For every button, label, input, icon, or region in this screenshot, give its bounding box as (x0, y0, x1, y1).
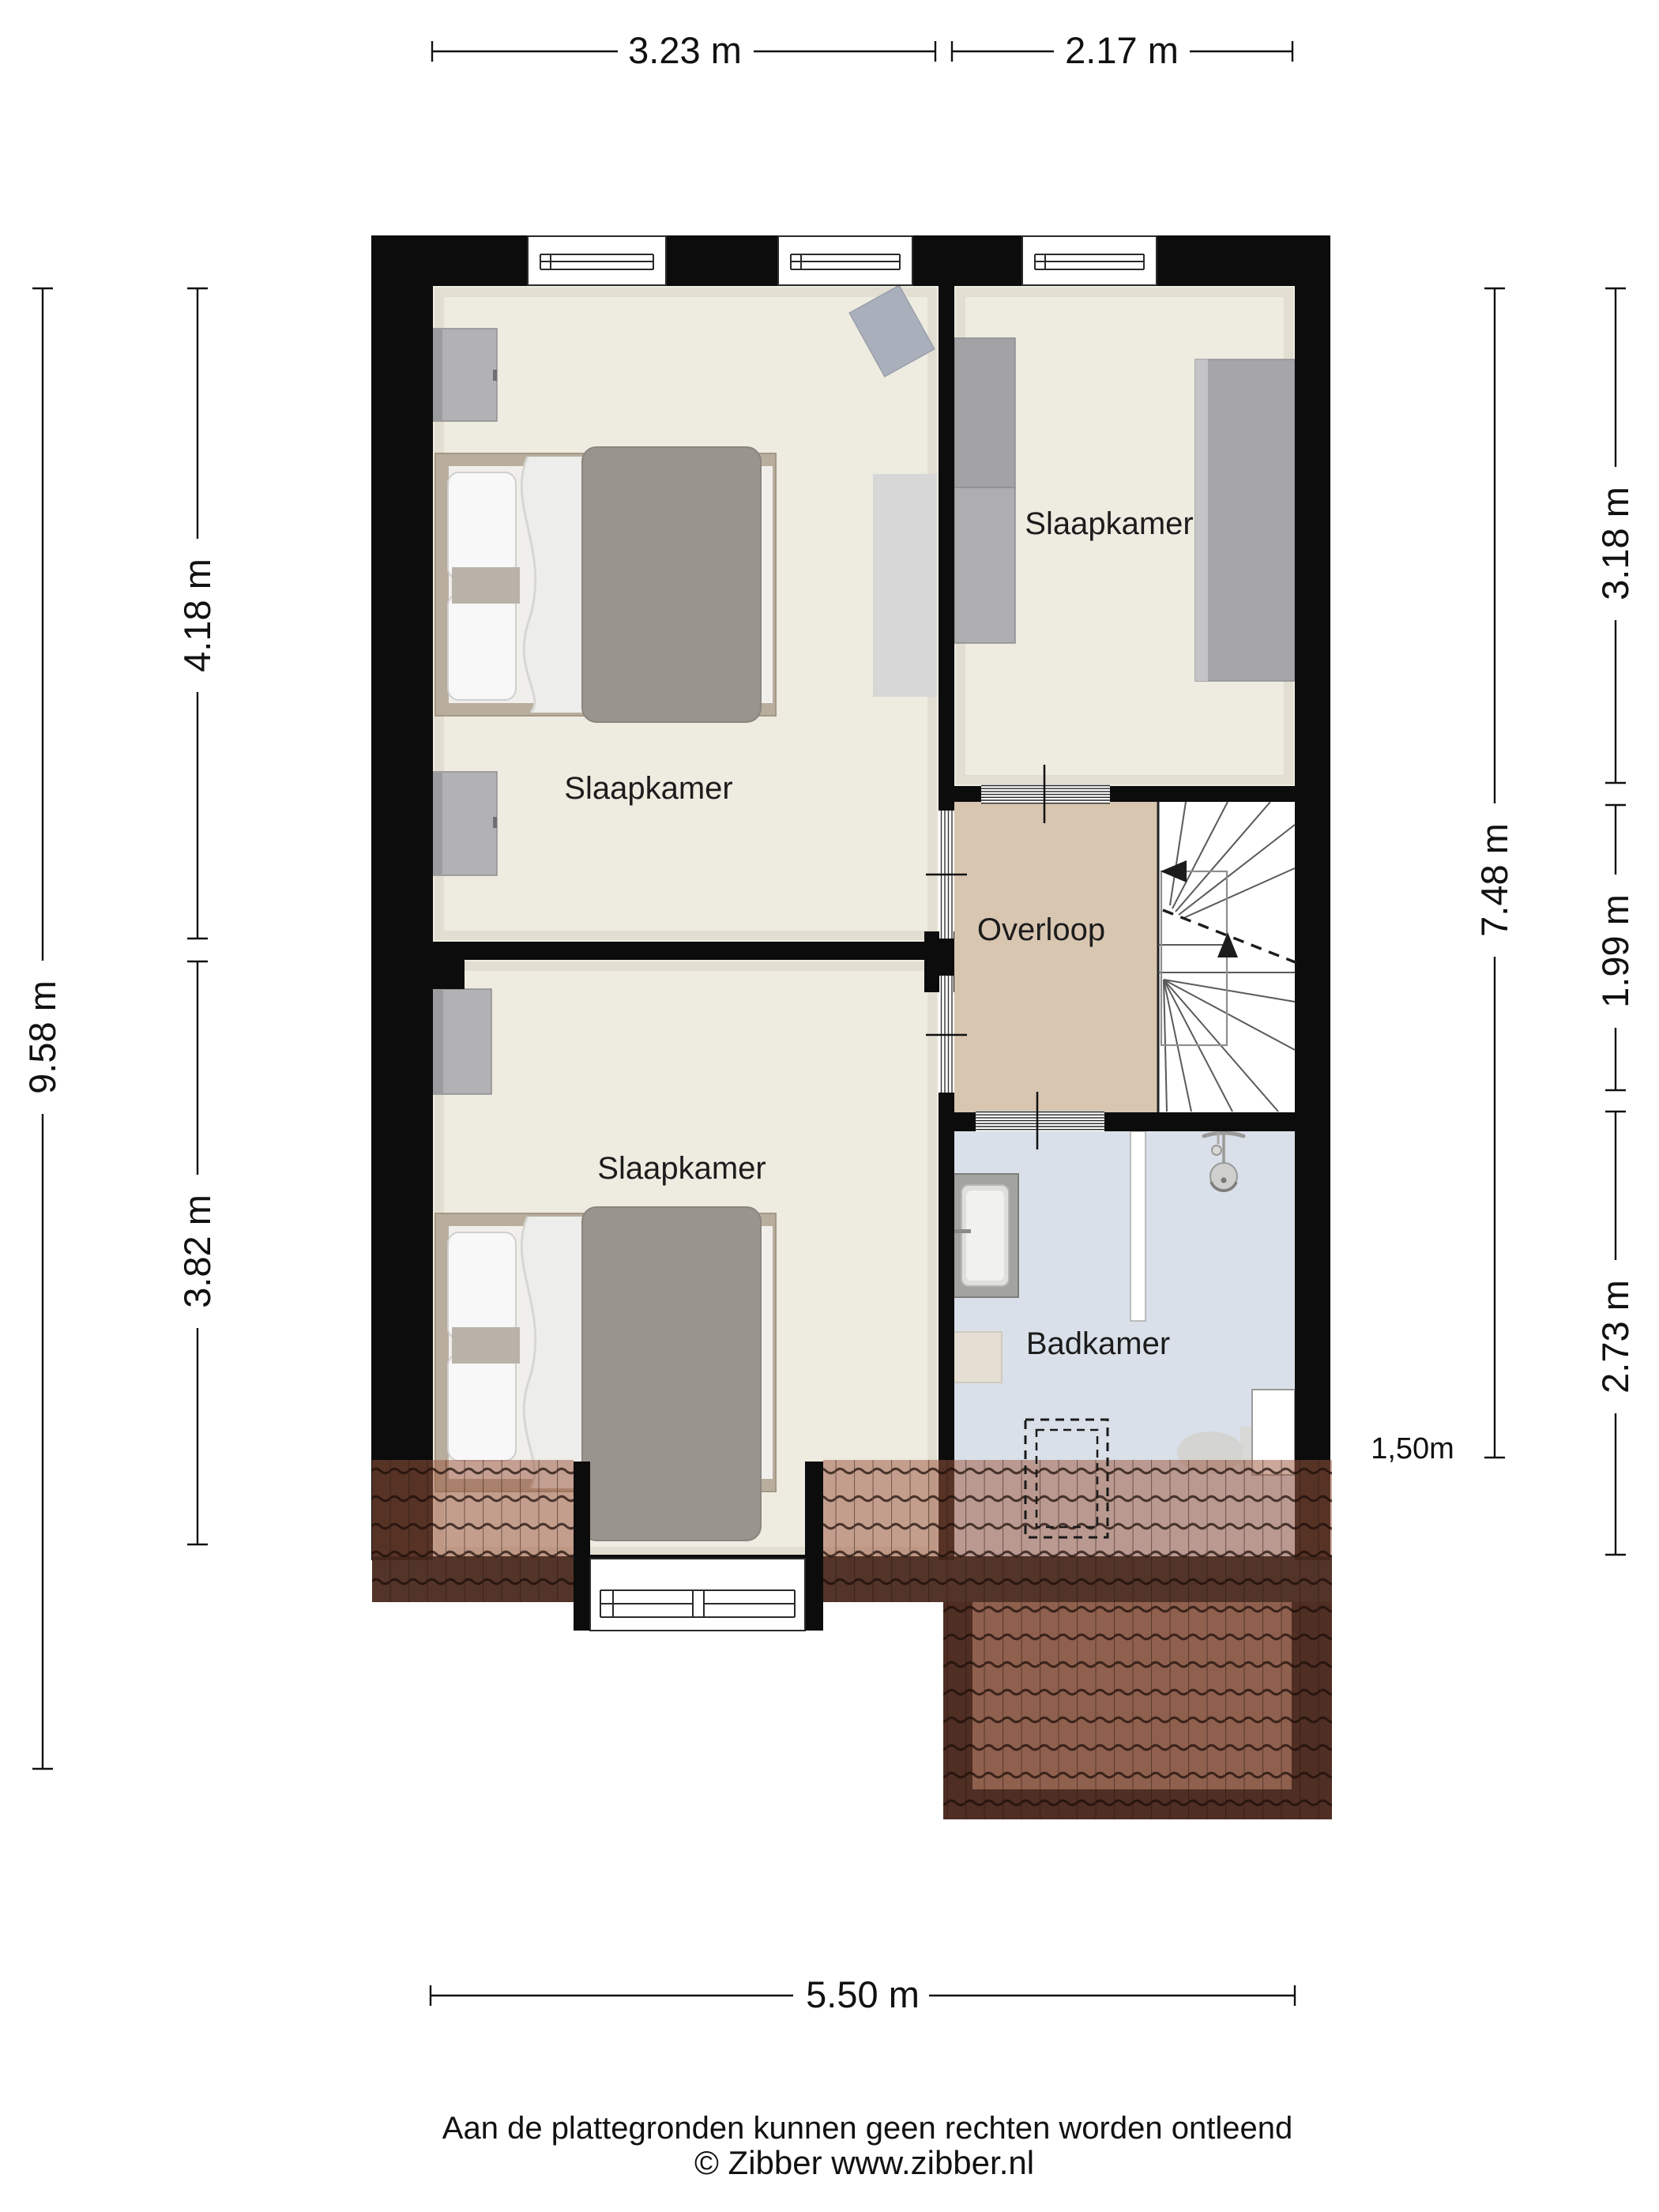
svg-text:Overloop: Overloop (977, 912, 1105, 947)
svg-text:© Zibber www.zibber.nl: © Zibber www.zibber.nl (694, 2144, 1034, 2181)
svg-text:3.23 m: 3.23 m (628, 29, 742, 71)
svg-text:Slaapkamer: Slaapkamer (1025, 506, 1193, 541)
svg-text:1,50m: 1,50m (1371, 1432, 1454, 1465)
svg-text:Aan de plattegronden kunnen ge: Aan de plattegronden kunnen geen rechten… (442, 2111, 1292, 2146)
svg-text:3.18 m: 3.18 m (1594, 487, 1636, 600)
svg-text:Slaapkamer: Slaapkamer (597, 1151, 766, 1186)
svg-text:Badkamer: Badkamer (1026, 1326, 1170, 1361)
svg-text:2.73 m: 2.73 m (1594, 1280, 1636, 1394)
svg-text:5.50 m: 5.50 m (806, 1973, 920, 2015)
svg-text:Slaapkamer: Slaapkamer (564, 771, 732, 806)
svg-text:1.99 m: 1.99 m (1594, 894, 1636, 1008)
svg-text:2.17 m: 2.17 m (1065, 29, 1179, 71)
svg-text:7.48 m: 7.48 m (1473, 823, 1515, 937)
svg-text:9.58 m: 9.58 m (21, 980, 63, 1094)
svg-text:3.82 m: 3.82 m (176, 1194, 218, 1308)
svg-text:4.18 m: 4.18 m (176, 559, 218, 672)
